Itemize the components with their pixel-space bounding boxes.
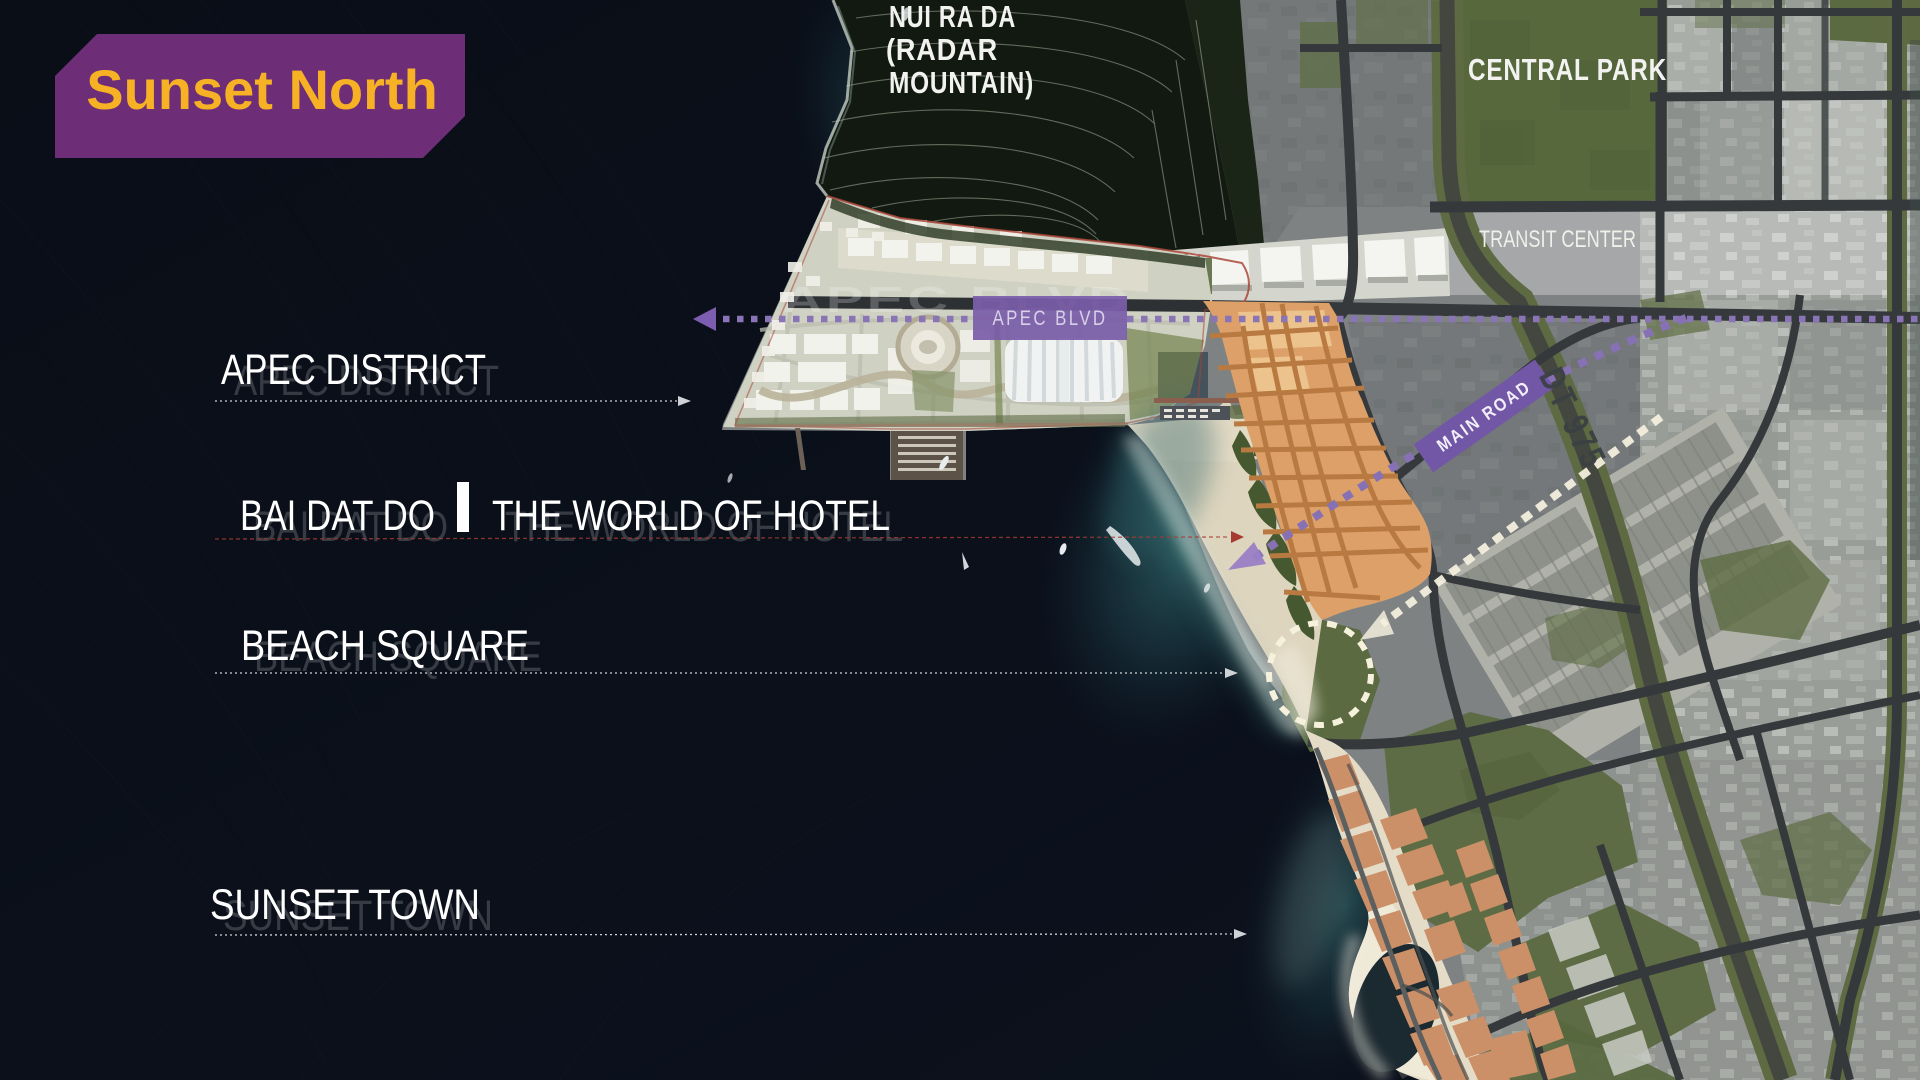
svg-text:MOUNTAIN): MOUNTAIN) <box>889 65 1034 100</box>
svg-text:Sunset North: Sunset North <box>86 58 438 121</box>
svg-text:CENTRAL PARK: CENTRAL PARK <box>1468 52 1667 87</box>
svg-text:TRANSIT CENTER: TRANSIT CENTER <box>1479 226 1636 253</box>
svg-text:THE WORLD OF HOTEL: THE WORLD OF HOTEL <box>492 492 890 540</box>
svg-text:BEACH SQUARE: BEACH SQUARE <box>241 622 529 670</box>
svg-text:APEC BLVD: APEC BLVD <box>993 307 1108 330</box>
svg-text:(RADAR: (RADAR <box>886 32 998 67</box>
svg-text:APEC DISTRICT: APEC DISTRICT <box>221 346 486 394</box>
svg-text:SUNSET TOWN: SUNSET TOWN <box>210 881 480 929</box>
svg-text:NUI RA DA: NUI RA DA <box>889 0 1016 34</box>
svg-text:BAI DAT DO: BAI DAT DO <box>240 492 435 540</box>
